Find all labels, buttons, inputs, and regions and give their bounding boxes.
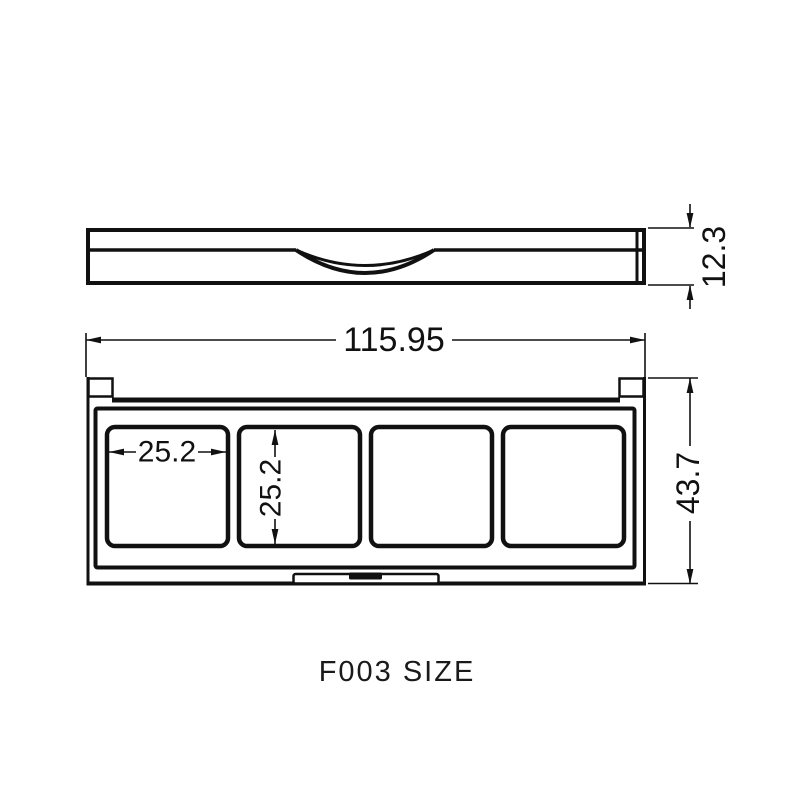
technical-drawing-canvas: 12.3 115.95 25.2 xyxy=(0,0,800,800)
cad-drawing: 12.3 115.95 25.2 xyxy=(0,0,800,800)
dimension-thickness: 12.3 xyxy=(648,204,732,309)
top-view xyxy=(87,377,647,585)
dimension-overall-depth: 43.7 xyxy=(648,378,706,584)
arrowhead-up-icon xyxy=(687,285,694,300)
arrowhead-right-icon xyxy=(630,337,645,344)
pan-4 xyxy=(503,427,624,546)
side-view-body xyxy=(88,230,644,283)
arrowhead-up-icon xyxy=(687,378,694,393)
dimension-label-overall-width: 115.95 xyxy=(343,321,444,359)
arrowhead-left-icon xyxy=(86,337,101,344)
hinge-tab-left xyxy=(89,379,113,397)
arrowhead-down-icon xyxy=(687,569,694,584)
hinge-tab-right xyxy=(620,379,644,397)
dimension-label-overall-depth: 43.7 xyxy=(670,452,706,514)
latch-tab xyxy=(349,573,382,580)
side-view xyxy=(88,230,644,283)
arrowhead-down-icon xyxy=(687,213,694,228)
dimension-label-thickness: 12.3 xyxy=(696,226,732,288)
dimension-label-pan-width: 25.2 xyxy=(138,436,196,469)
drawing-title: F003 SIZE xyxy=(319,656,476,688)
dimension-overall-width: 115.95 xyxy=(86,321,645,377)
pan-3 xyxy=(371,427,492,546)
dimension-label-pan-height: 25.2 xyxy=(255,459,288,517)
